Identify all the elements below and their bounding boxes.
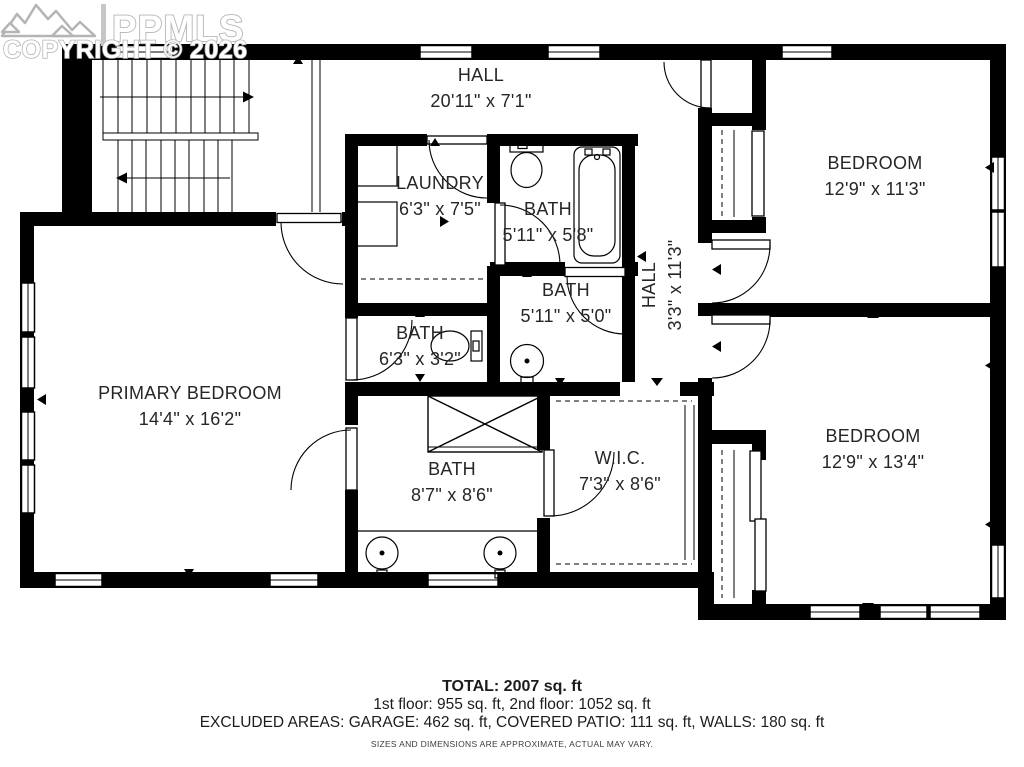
- window: [992, 212, 1005, 267]
- room-label-bedroom-bottom: BEDROOM 12'9" x 13'4": [822, 423, 925, 475]
- room-label-hall-vertical: HALL 3'3" x 11'3": [636, 240, 688, 331]
- window: [22, 337, 35, 388]
- room-label-bath-small: BATH 6'3" x 3'2": [379, 320, 461, 372]
- floor-plan-page: PPMLS COPYRIGHT © 2026 HALL 20'11" x 7'1…: [0, 0, 1024, 767]
- window: [270, 574, 318, 587]
- closet-shelving-bottom: [722, 450, 766, 598]
- door-primary-bath: [291, 428, 357, 490]
- room-label-bath-top: BATH 5'11" x 5'8": [503, 196, 594, 248]
- room-label-laundry: LAUNDRY 6'3" x 7'5": [396, 170, 484, 222]
- window: [880, 606, 927, 619]
- stair-up-arrow: [100, 92, 254, 103]
- window: [930, 606, 980, 619]
- vanity-sinks: [358, 531, 537, 578]
- dryer-icon: [352, 202, 397, 246]
- room-label-hall-upper: HALL 20'11" x 7'1": [430, 62, 531, 114]
- toilet-icon: [510, 140, 543, 188]
- window: [782, 46, 832, 59]
- washer-icon: [352, 145, 397, 186]
- door-primary-bedroom: [277, 214, 343, 285]
- total-area-text: TOTAL: 2007 sq. ft: [0, 678, 1024, 696]
- shower-icon: [428, 396, 542, 452]
- room-label-primary-bedroom: PRIMARY BEDROOM 14'4" x 16'2": [98, 380, 282, 432]
- window: [420, 46, 472, 59]
- window: [992, 545, 1005, 598]
- window: [55, 574, 102, 587]
- door-hall-closet: [664, 60, 711, 108]
- window: [22, 412, 35, 460]
- mountain-logo-icon: [2, 5, 95, 36]
- excluded-areas-text: EXCLUDED AREAS: GARAGE: 462 sq. ft, COVE…: [0, 714, 1024, 732]
- room-label-bath-middle: BATH 5'11" x 5'0": [521, 277, 612, 329]
- room-label-bath-primary: BATH 8'7" x 8'6": [411, 456, 493, 508]
- staircase: [100, 60, 320, 212]
- walls: [20, 44, 1006, 620]
- closet-shelving-top: [722, 130, 764, 217]
- watermark-logo: PPMLS COPYRIGHT © 2026: [2, 4, 248, 64]
- disclaimer-text: SIZES AND DIMENSIONS ARE APPROXIMATE, AC…: [0, 739, 1024, 749]
- area-summary: TOTAL: 2007 sq. ft 1st floor: 955 sq. ft…: [0, 678, 1024, 749]
- window: [22, 465, 35, 513]
- window: [428, 574, 498, 587]
- windows: [22, 46, 1005, 619]
- room-label-bedroom-top: BEDROOM 12'9" x 11'3": [824, 150, 925, 202]
- copyright-text: COPYRIGHT © 2026: [3, 36, 248, 64]
- window: [22, 283, 35, 332]
- floor-areas-text: 1st floor: 955 sq. ft, 2nd floor: 1052 s…: [0, 696, 1024, 714]
- window: [548, 46, 600, 59]
- sink-icon: [511, 345, 544, 388]
- stair-down-arrow: [116, 173, 230, 184]
- window: [810, 606, 860, 619]
- room-label-wic: W.I.C. 7'3" x 8'6": [579, 445, 661, 497]
